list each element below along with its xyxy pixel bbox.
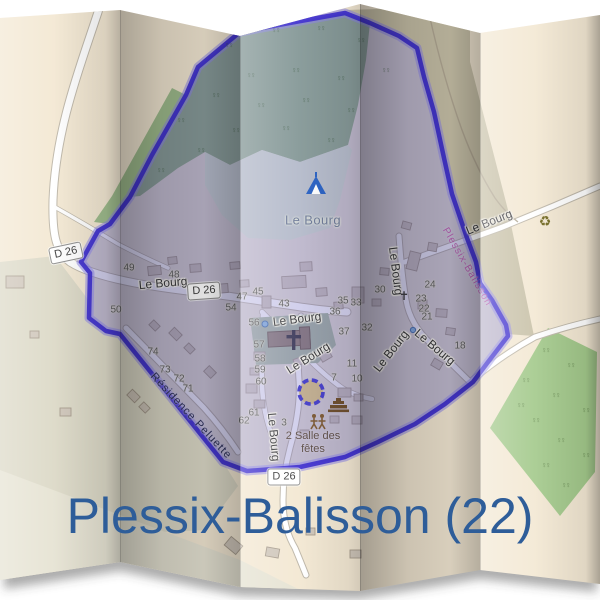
tree-icon: ♀♀ [336,74,344,83]
house-number: 35 [337,296,348,307]
house-number: 45 [252,287,263,298]
house-number: 43 [278,299,289,310]
street-label: Le Bourg [412,326,458,368]
house-number: 48 [168,270,179,281]
road-ref-badge: D 26 [48,241,84,265]
house-number: 24 [424,280,435,291]
house-number: 32 [361,323,372,334]
street-label: Le Bourg [370,328,411,375]
tree-icon: ♀♀ [561,481,569,490]
tree-icon: ♀♀ [326,136,334,145]
tree-icon: ♀♀ [521,376,529,385]
house-number: 22 [418,304,429,315]
street-label: Le Bourg [284,339,333,377]
street-label: Le Bourg [386,246,406,296]
house-number: 37 [338,327,349,338]
tree-icon: ♀♀ [581,451,589,460]
tree-icon: ♀♀ [176,116,184,125]
place-label: Le Bourg [285,213,341,228]
house-number: 73 [159,365,170,376]
house-number: 57 [253,340,264,351]
tree-icon: ♀♀ [541,461,549,470]
house-number: 47 [236,292,247,303]
tree-icon: ♀♀ [196,146,204,155]
street-label: Le Bourg [272,309,322,329]
tree-icon: ♀♀ [224,41,232,50]
house-number: 56 [248,318,259,329]
tree-icon: ♀♀ [211,91,219,100]
tree-icon: ♀♀ [556,436,564,445]
tree-icon: ♀♀ [301,96,309,105]
tree-icon: ♀♀ [316,24,324,33]
house-number: 60 [255,377,266,388]
street-label: Le Bourg [265,412,283,462]
tree-icon: ♀♀ [256,101,264,110]
house-number: 49 [123,263,134,274]
house-number: 18 [454,341,465,352]
house-number: 71 [182,384,193,395]
tree-icon: ♀♀ [231,126,239,135]
tree-icon: ♀♀ [346,106,354,115]
tree-icon: ♀♀ [551,391,559,400]
house-number: 61 [248,408,259,419]
house-number: 36 [329,307,340,318]
road-ref-badge: D 26 [267,469,300,486]
residence-street-label: Résidence Peluette [148,370,234,461]
house-number: 7 [331,373,337,384]
house-number: 23 [415,294,426,305]
map-title: Plessix-Balisson (22) [67,487,534,545]
street-label: Le Bourg [138,274,188,292]
road-ref-badge: D 26 [187,281,221,300]
house-number: 72 [173,374,184,385]
tree-icon: ♀♀ [581,406,589,415]
tree-icon: ♀♀ [291,66,299,75]
house-number: 59 [254,365,265,376]
wayside-cross-icon: ✝ [399,290,409,302]
house-number: 54 [225,303,236,314]
folded-paper: Le Bourg Le BourgLe BourgLe BourgLe Bour… [0,0,600,600]
commune-boundary-label: Plessix-Balisson [440,226,494,308]
tree-icon: ♀♀ [516,401,524,410]
folded-map-poster: Le Bourg Le BourgLe BourgLe BourgLe Bour… [0,0,600,600]
recycling-icon: ♻ [539,214,552,228]
tree-icon: ♀♀ [381,66,389,75]
house-number: 58 [254,354,265,365]
tree-icon: ♀♀ [156,166,164,175]
tree-icon: ♀♀ [531,416,539,425]
street-label: Le Bourg [464,206,514,237]
tree-icon: ♀♀ [541,346,549,355]
house-number: 11 [347,359,357,370]
house-number: 3 [281,418,287,429]
house-number: 30 [374,285,385,296]
amenity-label: 2 Salle desfêtes [286,430,340,456]
tree-icon: ♀♀ [246,71,254,80]
house-number: 74 [147,347,158,358]
tree-icon: ♀♀ [281,124,289,133]
house-number: 21 [421,312,432,323]
tree-icon: ♀♀ [566,361,574,370]
